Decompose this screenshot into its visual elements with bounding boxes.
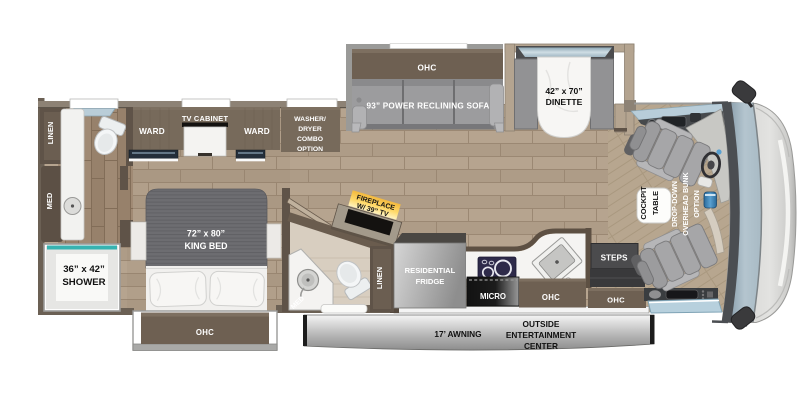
svg-text:WASHER/: WASHER/ (294, 116, 326, 123)
svg-text:42” x 70”: 42” x 70” (545, 86, 582, 96)
svg-text:SHOWER: SHOWER (62, 277, 105, 288)
svg-text:TABLE: TABLE (651, 191, 660, 215)
svg-text:WARD: WARD (244, 127, 270, 136)
svg-text:KING BED: KING BED (184, 241, 227, 251)
svg-text:DINETTE: DINETTE (546, 97, 583, 107)
svg-text:TV CABINET: TV CABINET (182, 114, 229, 123)
svg-text:OVERHEAD BUNK: OVERHEAD BUNK (681, 171, 690, 235)
svg-text:OHC: OHC (196, 328, 214, 337)
svg-text:LINEN: LINEN (46, 122, 55, 145)
svg-text:DROP-DOWN: DROP-DOWN (670, 181, 679, 227)
svg-text:COCKPIT: COCKPIT (639, 186, 648, 220)
svg-text:OHC: OHC (542, 293, 560, 302)
svg-text:93” POWER RECLINING SOFA: 93” POWER RECLINING SOFA (366, 102, 489, 111)
svg-text:OHC: OHC (417, 64, 436, 73)
svg-text:MED: MED (45, 192, 54, 209)
svg-text:36” x 42”: 36” x 42” (63, 264, 105, 275)
svg-text:FRIDGE: FRIDGE (416, 277, 445, 286)
svg-text:STEPS: STEPS (601, 254, 628, 263)
svg-text:DRYER: DRYER (298, 126, 322, 133)
svg-text:17’ AWNING: 17’ AWNING (434, 329, 481, 339)
svg-text:OPTION: OPTION (297, 146, 323, 153)
svg-text:OUTSIDE: OUTSIDE (523, 319, 560, 329)
svg-text:OHC: OHC (607, 296, 625, 305)
svg-text:RESIDENTIAL: RESIDENTIAL (405, 266, 456, 275)
svg-text:72” x 80”: 72” x 80” (187, 229, 225, 239)
svg-text:COMBO: COMBO (297, 136, 323, 143)
svg-text:WARD: WARD (139, 127, 165, 136)
svg-text:MICRO: MICRO (480, 292, 506, 301)
svg-text:OPTION: OPTION (692, 190, 701, 218)
svg-text:CENTER: CENTER (524, 341, 558, 351)
svg-text:ENTERTAINMENT: ENTERTAINMENT (506, 330, 576, 340)
svg-text:LINEN: LINEN (375, 267, 384, 289)
